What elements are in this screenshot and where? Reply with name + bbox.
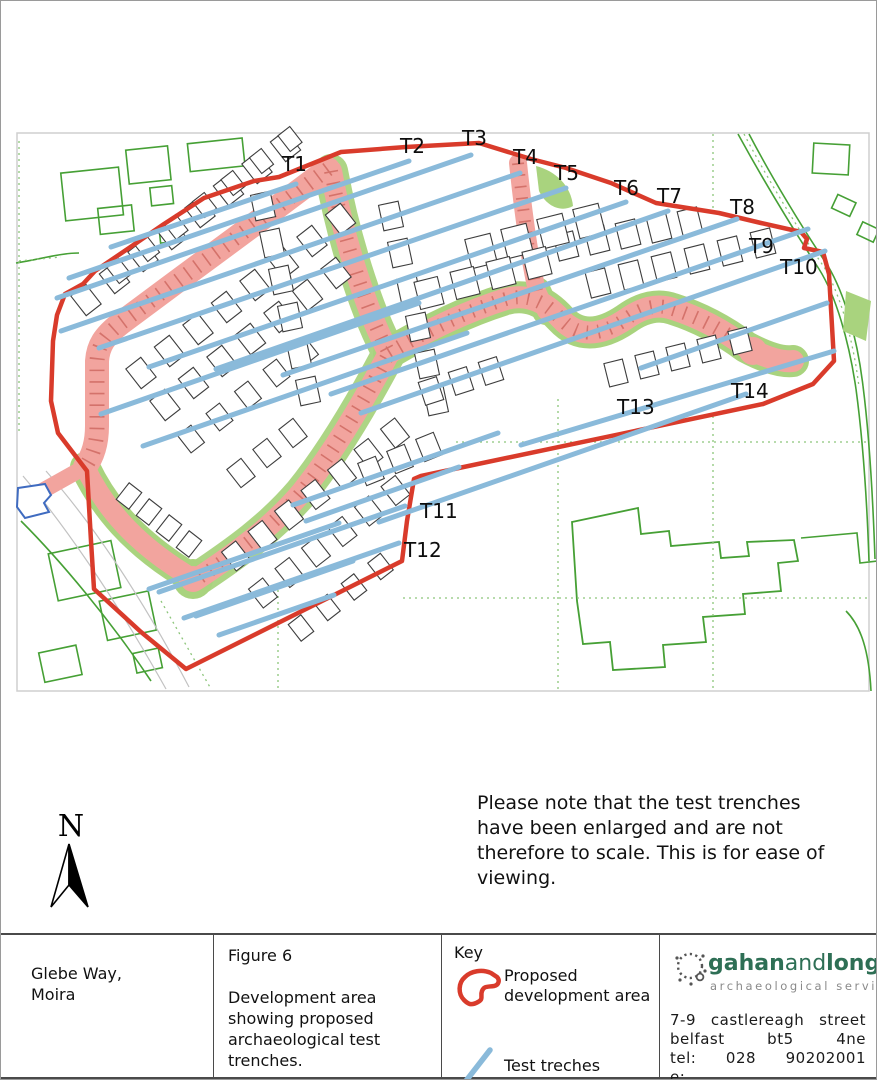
figure-caption: Development area showing proposed archae… — [228, 987, 441, 1071]
trench-label-T14: T14 — [730, 379, 769, 403]
figure-number: Figure 6 — [228, 945, 441, 966]
trench-label-T1: T1 — [281, 152, 307, 176]
figure-page: T1T2T3T4T5T6T7T8T9T10T11T12T13T14 N Plea… — [0, 0, 877, 1080]
address-line-3: tel: 028 90202001 — [670, 1049, 866, 1068]
company-logo: gahanandlongltd archaeological services — [670, 943, 866, 1005]
trench-label-T5: T5 — [553, 161, 579, 185]
north-arrow: N — [41, 809, 101, 913]
company-name-part3: long — [826, 951, 877, 976]
development-area-outline-icon — [456, 966, 502, 1008]
key-item-development-area: Proposed development area — [454, 964, 659, 1022]
trench-label-T13: T13 — [616, 395, 655, 419]
blue-parcel — [17, 484, 51, 518]
company-address: 7-9 castlereagh street belfast bt5 4ne t… — [670, 1011, 866, 1080]
trench-line-icon — [456, 1046, 502, 1080]
scale-note: Please note that the test trenches have … — [477, 791, 843, 891]
trench-label-T11: T11 — [419, 499, 458, 523]
title-block: Glebe Way, Moira Figure 6 Development ar… — [1, 933, 876, 1079]
address-line-2: belfast bt5 4ne — [670, 1030, 866, 1049]
company-tagline: archaeological services — [710, 979, 877, 993]
key-cell: Key Proposed development area Test trech… — [441, 935, 659, 1077]
project-name-line2: Moira — [31, 984, 213, 1005]
project-cell: Glebe Way, Moira — [1, 935, 213, 1077]
trench-label-T7: T7 — [656, 184, 682, 208]
address-line-1: 7-9 castlereagh street — [670, 1011, 866, 1030]
trench-label-T3: T3 — [461, 126, 487, 150]
key-title: Key — [454, 943, 659, 962]
company-cell: gahanandlongltd archaeological services … — [659, 935, 876, 1077]
trench-label-T6: T6 — [613, 176, 639, 200]
figure-cell: Figure 6 Development area showing propos… — [213, 935, 441, 1077]
company-logo-icon — [674, 949, 708, 989]
trench-label-T10: T10 — [779, 255, 818, 279]
company-name-part1: gahan — [708, 951, 785, 976]
company-name: gahanandlongltd — [708, 951, 877, 976]
trench-label-T12: T12 — [403, 538, 442, 562]
north-arrow-icon — [41, 809, 101, 913]
site-map: T1T2T3T4T5T6T7T8T9T10T11T12T13T14 — [1, 1, 877, 741]
project-name-line1: Glebe Way, — [31, 963, 213, 984]
key-label-development-area: Proposed development area — [504, 966, 659, 1006]
trench-label-T8: T8 — [729, 195, 755, 219]
trench-label-T4: T4 — [512, 145, 538, 169]
key-item-test-trenches: Test treches — [454, 1044, 659, 1080]
company-name-part2: and — [785, 951, 826, 976]
trench-label-T9: T9 — [748, 234, 774, 258]
address-line-4: e: info@gahanlong.co.uk — [670, 1068, 866, 1080]
trench-label-T2: T2 — [399, 134, 425, 158]
key-label-test-trenches: Test treches — [504, 1056, 600, 1076]
